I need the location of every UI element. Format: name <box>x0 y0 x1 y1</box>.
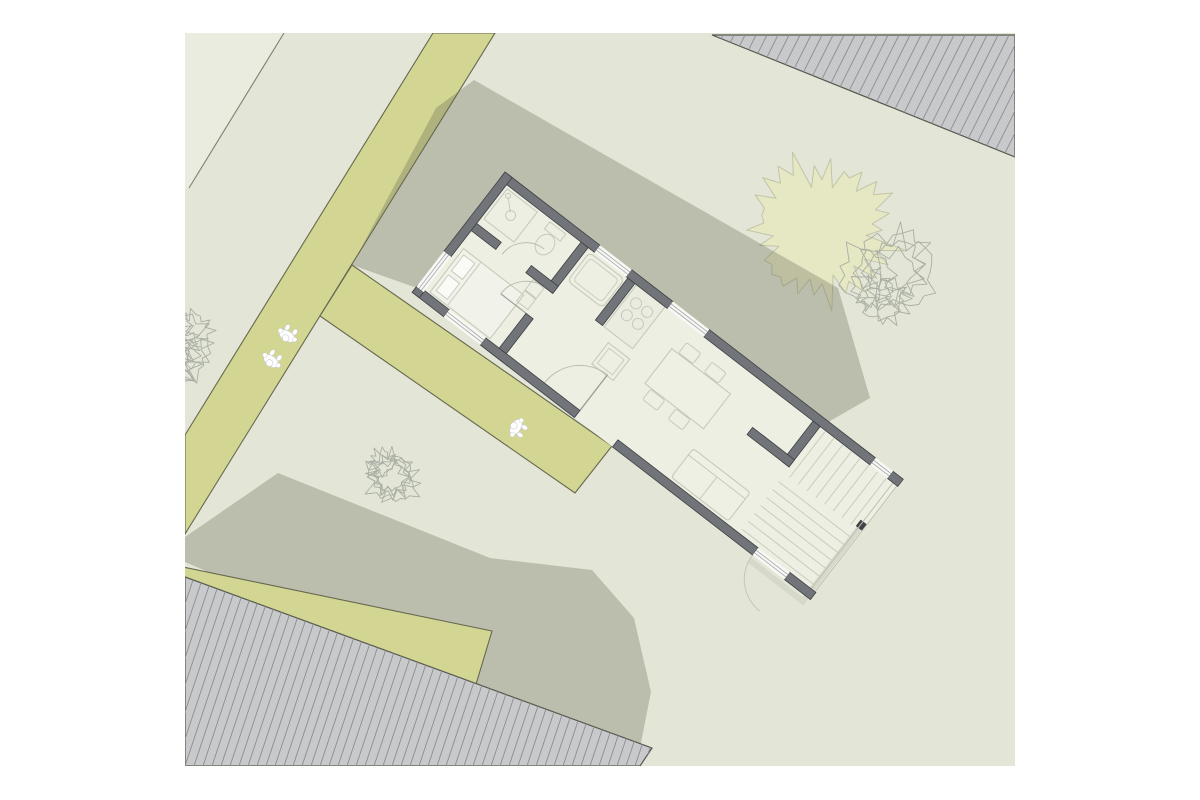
site-plan <box>0 0 1200 800</box>
roof-hatch-line <box>131 577 194 766</box>
tree-scribble <box>125 314 195 389</box>
roof-hatch-line <box>1025 35 1086 157</box>
roof-hatch-line <box>122 577 185 766</box>
drawing-root <box>122 33 1086 766</box>
page <box>0 0 1200 800</box>
roof-hatch-line <box>1014 35 1075 157</box>
